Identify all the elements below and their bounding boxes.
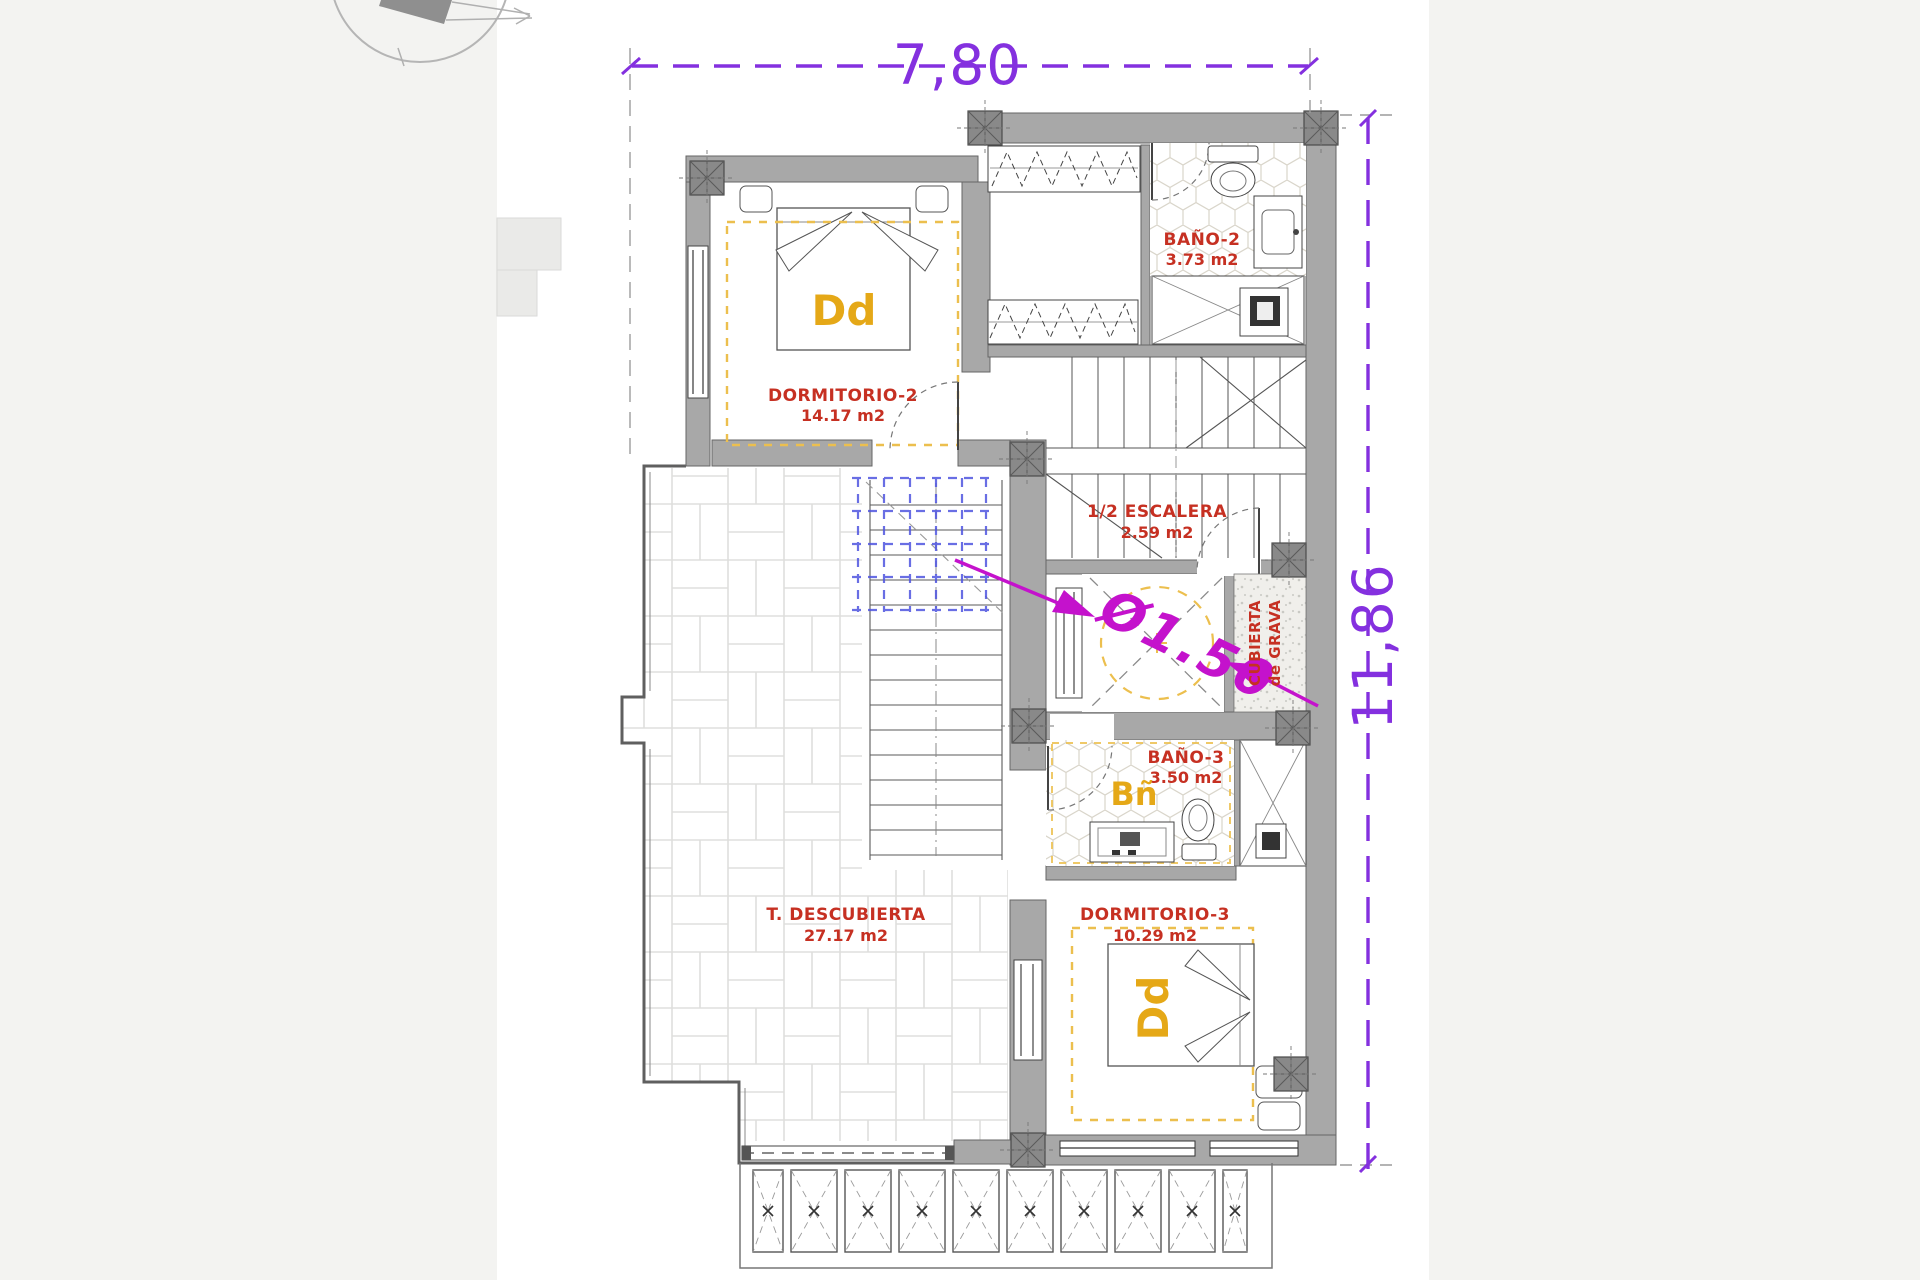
label-terraza-name: T. DESCUBIERTA	[766, 905, 926, 925]
label-dormitorio2-code: Dd	[812, 286, 877, 335]
label-terraza-area: 27.17 m2	[804, 926, 888, 945]
window-dormitorio2	[688, 246, 708, 398]
closet-bottom	[988, 300, 1138, 344]
label-dormitorio3-code: Dd	[1129, 976, 1178, 1041]
dimension-height-label: 11,86	[1341, 562, 1405, 729]
door-terrace-panel	[1014, 960, 1042, 1060]
label-dormitorio3-name: DORMITORIO-3	[1080, 905, 1230, 925]
label-dormitorio2-name: DORMITORIO-2	[768, 386, 918, 406]
label-escalera-area: 2.59 m2	[1121, 523, 1194, 542]
label-bano3-code: Bñ	[1110, 775, 1157, 813]
label-escalera-name: 1/2 ESCALERA	[1087, 502, 1227, 522]
floor-plan-page: 7,80 11,86 Ø1.50 DORMITORIO-2 14.17 m2 D…	[0, 0, 1920, 1280]
label-bano2-name: BAÑO-2	[1164, 227, 1241, 250]
label-gravel-roof-line2: de GRAVA	[1266, 600, 1284, 687]
floor-plan-drawing: 7,80 11,86 Ø1.50 DORMITORIO-2 14.17 m2 D…	[0, 0, 1920, 1280]
label-dormitorio3-area: 10.29 m2	[1113, 926, 1197, 945]
label-bano3-name: BAÑO-3	[1148, 745, 1225, 768]
label-bano2-area: 3.73 m2	[1166, 250, 1239, 269]
label-dormitorio2-area: 14.17 m2	[801, 406, 885, 425]
terrace-railing	[742, 1146, 954, 1160]
label-gravel-roof-line1: CUBIERTA	[1246, 600, 1264, 686]
label-bano3-area: 3.50 m2	[1150, 768, 1223, 787]
closet-top	[988, 146, 1140, 192]
window-dormitorio3	[1060, 1141, 1298, 1156]
dimension-width-label: 7,80	[893, 33, 1023, 97]
